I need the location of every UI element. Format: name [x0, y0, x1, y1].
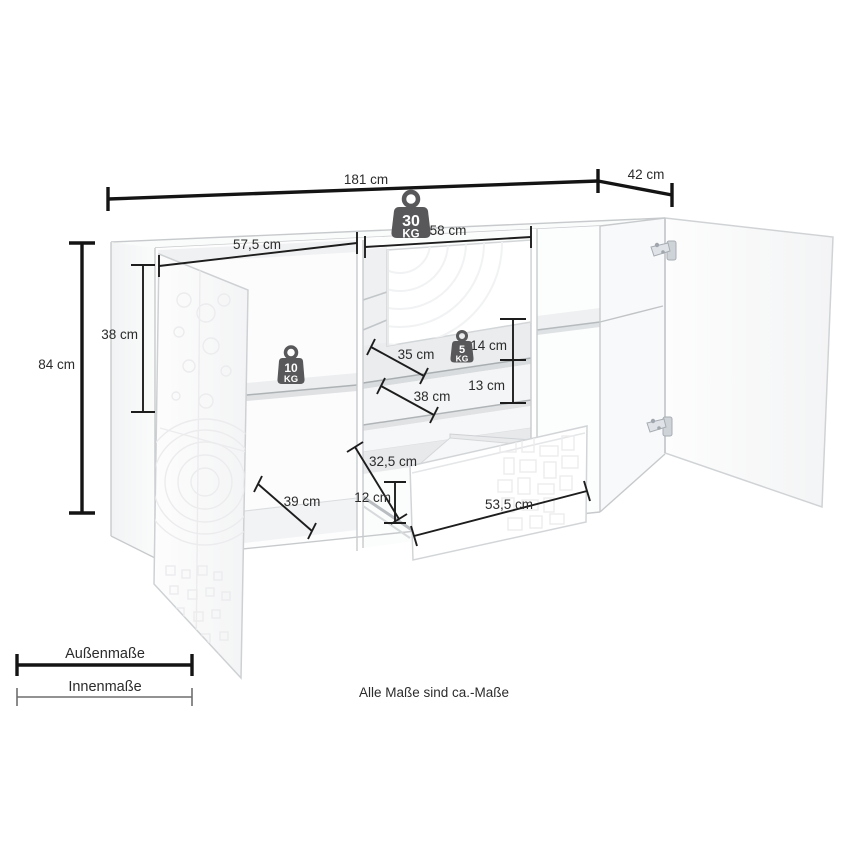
weight-badge-top-icon: 30 KG [391, 192, 430, 241]
sideboard-diagram: 181 cm 42 cm 84 cm 38 cm 57,5 cm 58 cm 1… [0, 0, 868, 868]
legend-outer-label: Außenmaße [65, 646, 145, 662]
legend: Außenmaße Innenmaße [17, 646, 192, 706]
dim-shelf-depth-upper-label: 35 cm [398, 347, 435, 362]
dim-outer-height-label: 84 cm [38, 357, 75, 372]
dim-left-inner-height-label: 38 cm [101, 327, 138, 342]
cabinet-left-side-panel [111, 242, 155, 558]
right-side-panel [600, 218, 665, 512]
weight-left-unit: KG [284, 374, 298, 385]
weight-left-value: 10 [284, 361, 298, 375]
legend-inner-label: Innenmaße [68, 679, 141, 695]
dim-shelf-depth-lower-label: 38 cm [414, 389, 451, 404]
dim-outer-depth-label: 42 cm [628, 167, 665, 182]
dim-left-inner-width-label: 57,5 cm [233, 237, 281, 252]
weight-top-unit: KG [402, 229, 419, 241]
dim-outer-width-label: 181 cm [344, 172, 388, 187]
right-door [647, 218, 833, 507]
dim-drawer-inner-width-label: 53,5 cm [485, 497, 533, 512]
dim-left-floor-depth-label: 39 cm [284, 494, 321, 509]
furniture-dimension-diagram: 181 cm 42 cm 84 cm 38 cm 57,5 cm 58 cm 1… [0, 0, 868, 868]
dim-middle-inner-width-label: 58 cm [430, 223, 467, 238]
dim-gap-lower-label: 13 cm [468, 378, 505, 393]
dim-drawer-inner-height-label: 12 cm [354, 490, 391, 505]
dim-drawer-depth-label: 32,5 cm [369, 454, 417, 469]
dim-gap-upper-label: 14 cm [470, 338, 507, 353]
footer-note: Alle Maße sind ca.-Maße [359, 685, 509, 700]
weight-middle-unit: KG [456, 354, 469, 364]
weight-top-value: 30 [402, 213, 420, 230]
